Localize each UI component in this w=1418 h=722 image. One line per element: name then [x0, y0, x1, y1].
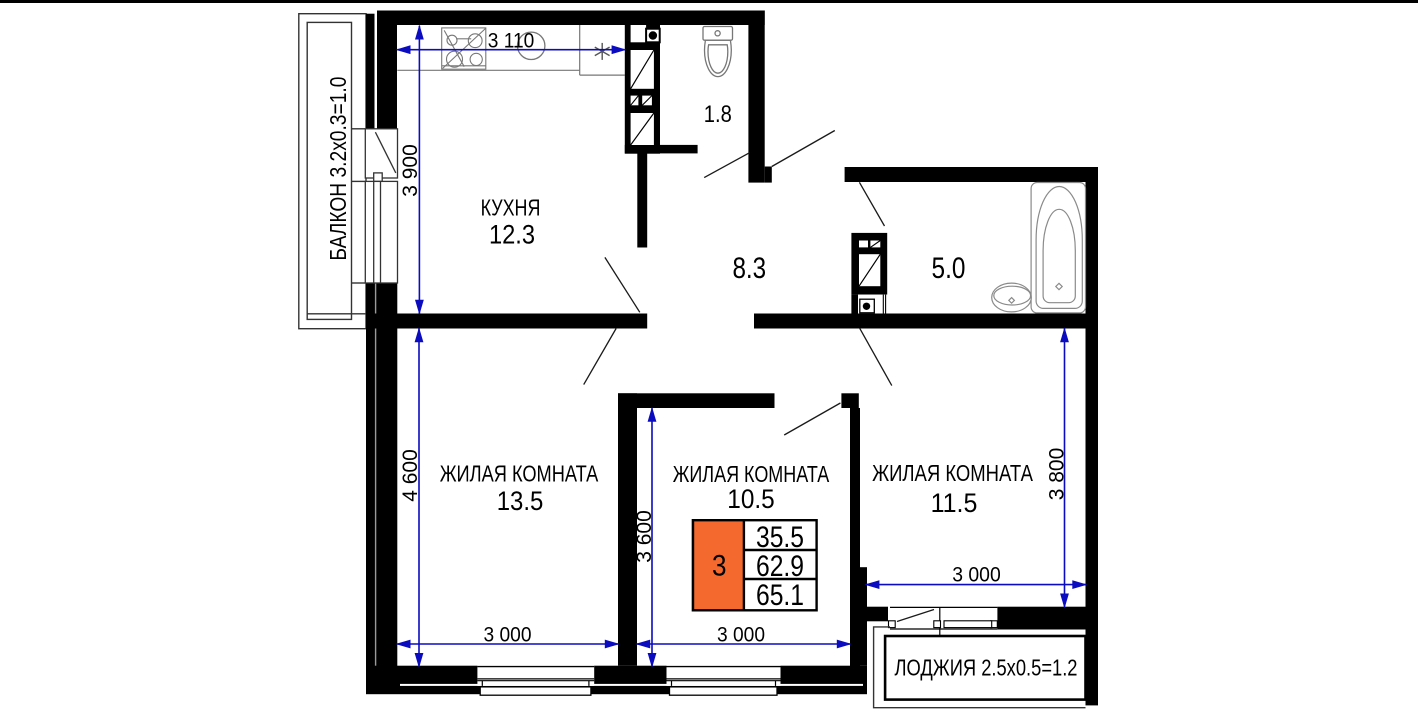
svg-text:3 600: 3 600	[633, 510, 656, 563]
svg-text:3 900: 3 900	[399, 144, 422, 197]
svg-text:3: 3	[712, 549, 727, 582]
svg-text:ЖИЛАЯ КОМНАТА: ЖИЛАЯ КОМНАТА	[440, 460, 599, 486]
svg-text:13.5: 13.5	[497, 486, 544, 516]
svg-text:4 600: 4 600	[399, 449, 422, 502]
svg-text:3 000: 3 000	[952, 564, 1001, 587]
svg-text:12.3: 12.3	[489, 219, 535, 249]
svg-text:3 000: 3 000	[717, 624, 765, 647]
svg-text:КУХНЯ: КУХНЯ	[481, 194, 541, 220]
svg-text:ЖИЛАЯ КОМНАТА: ЖИЛАЯ КОМНАТА	[872, 460, 1033, 486]
svg-text:5.0: 5.0	[932, 252, 966, 285]
svg-text:62.9: 62.9	[756, 550, 804, 583]
svg-text:ЛОДЖИЯ 2.5х0.5=1.2: ЛОДЖИЯ 2.5х0.5=1.2	[895, 655, 1078, 681]
svg-text:10.5: 10.5	[727, 484, 774, 514]
svg-text:11.5: 11.5	[931, 488, 978, 518]
svg-text:1.8: 1.8	[704, 101, 732, 128]
svg-text:3 000: 3 000	[484, 624, 532, 647]
svg-text:3 800: 3 800	[1046, 448, 1069, 501]
svg-text:8.3: 8.3	[732, 252, 766, 285]
svg-text:3 110: 3 110	[488, 30, 535, 53]
svg-text:65.1: 65.1	[756, 579, 804, 612]
svg-text:БАЛКОН 3.2х0.3=1.0: БАЛКОН 3.2х0.3=1.0	[325, 77, 351, 261]
